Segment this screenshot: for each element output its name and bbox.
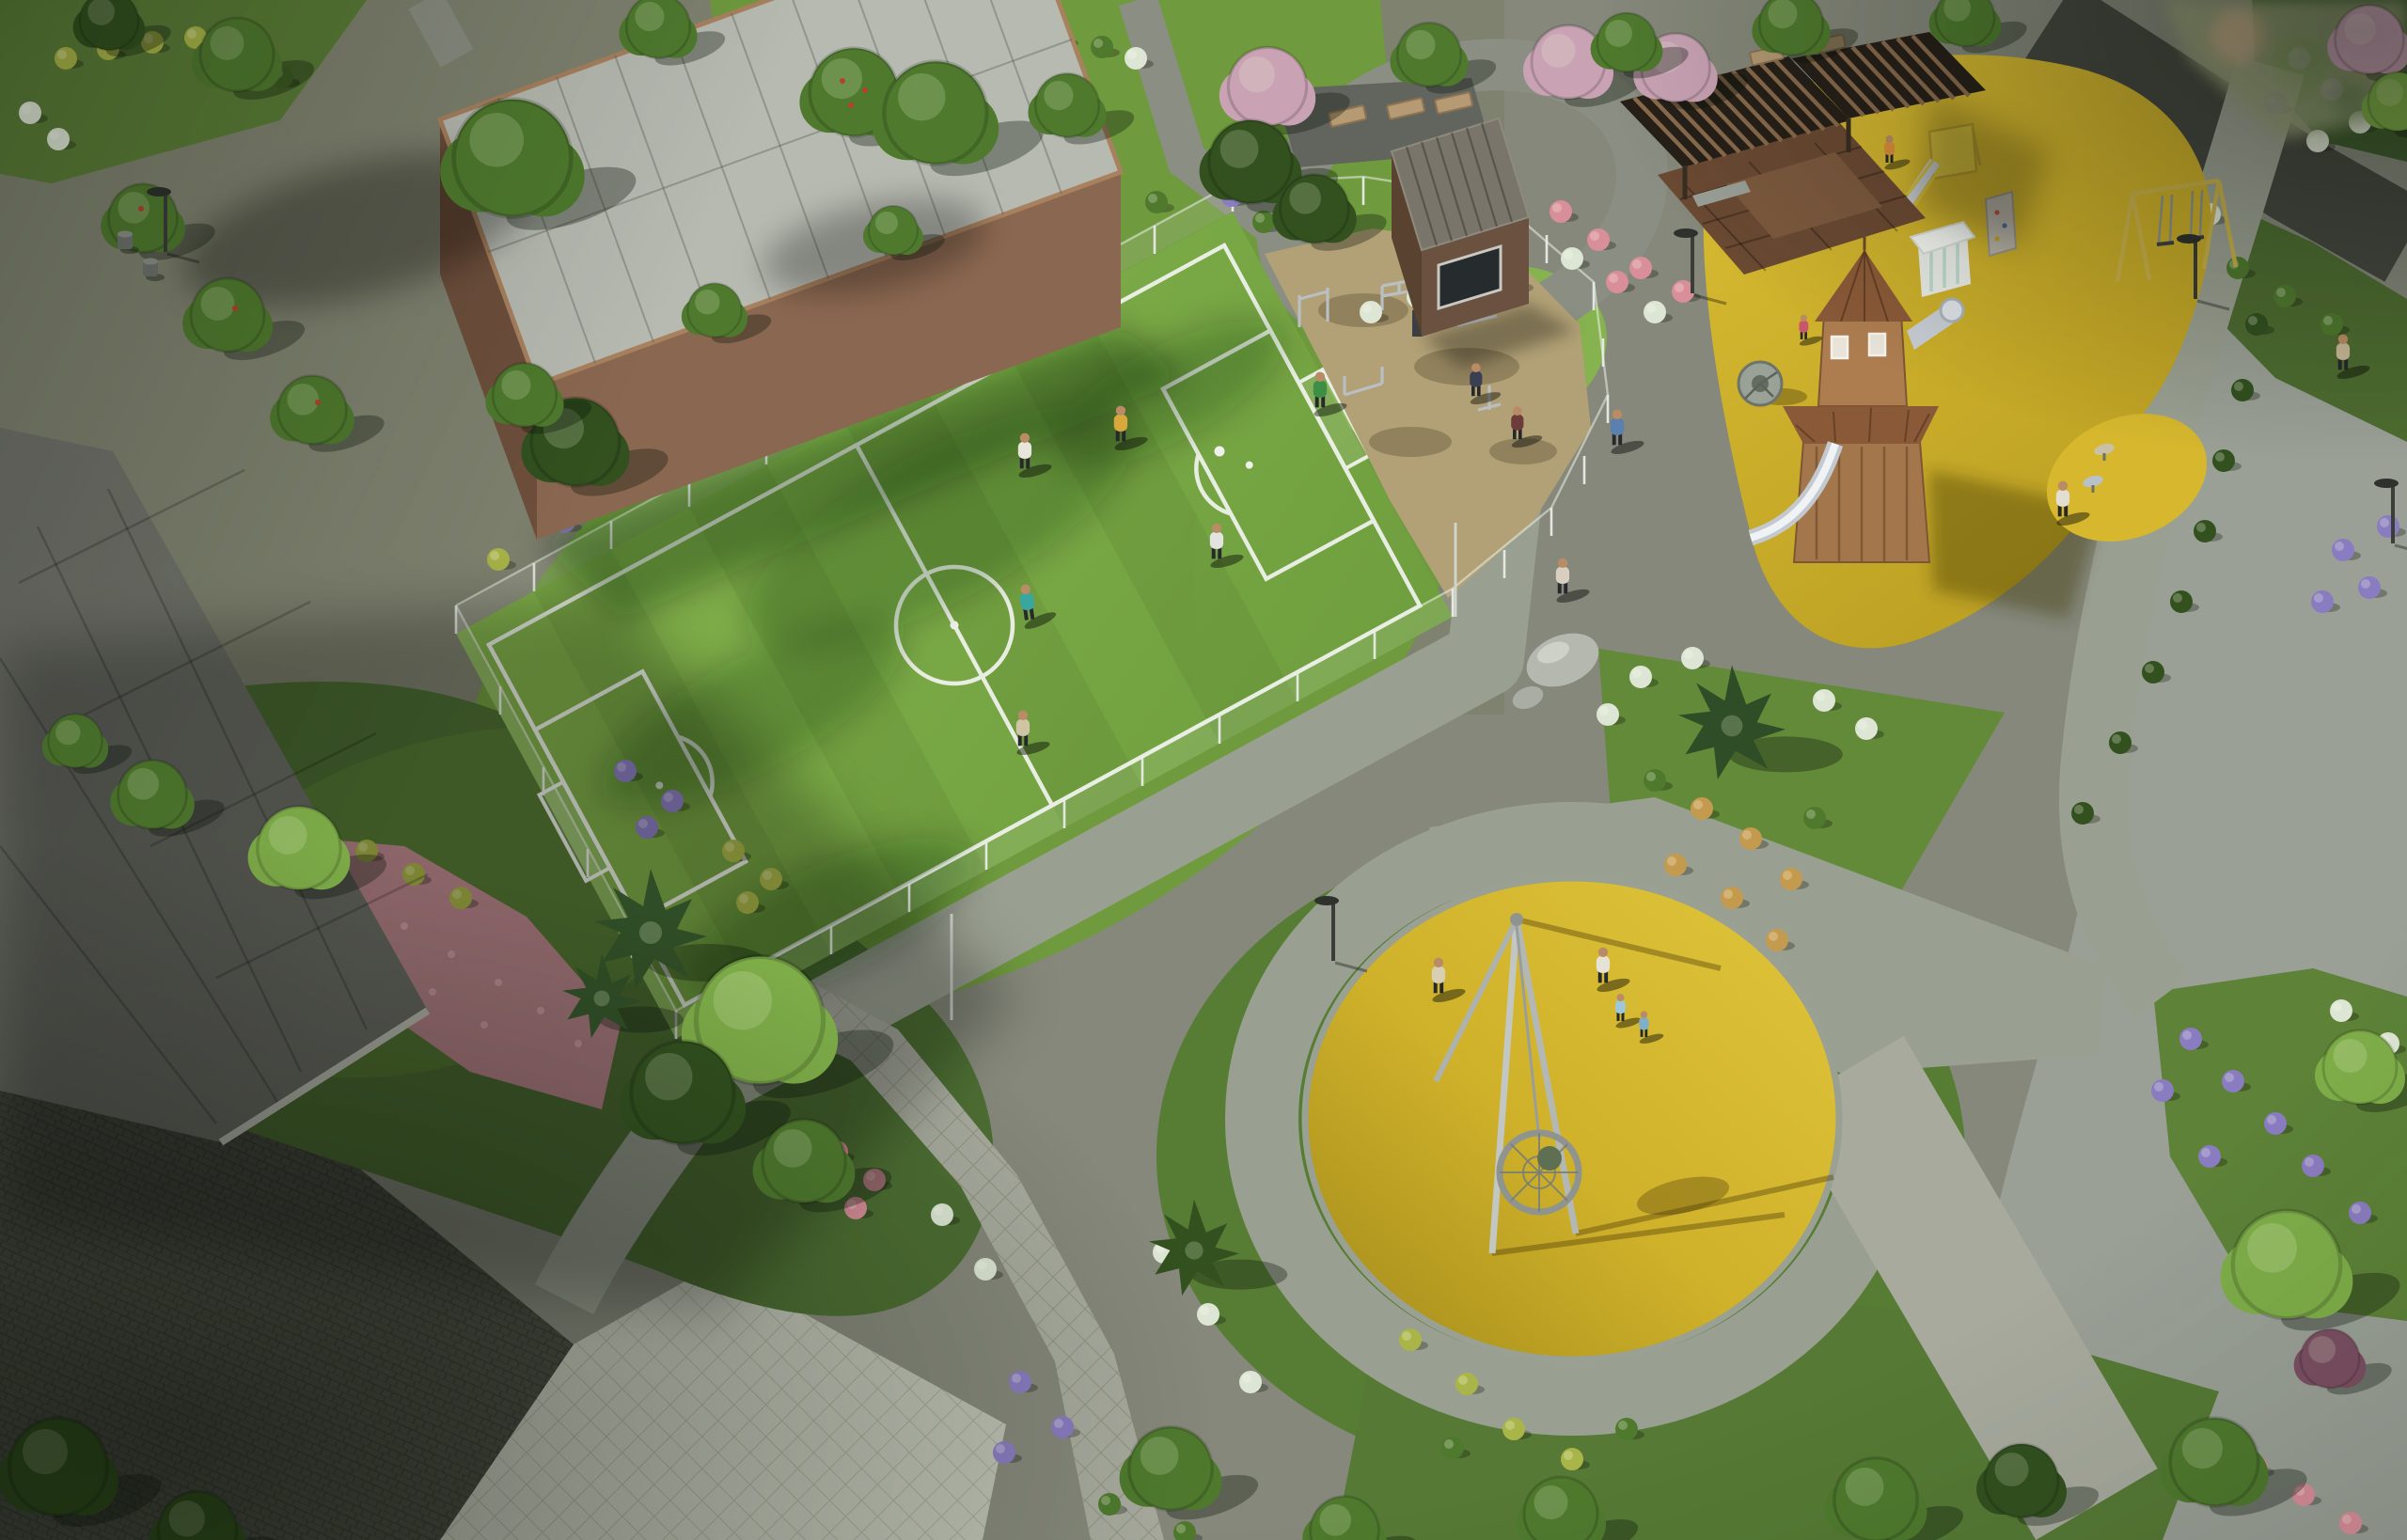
rubber-circle [1305,878,1839,1359]
soccer-ball [1215,447,1225,457]
rope-swing-area [1305,878,1839,1359]
basket-net [1500,1133,1579,1212]
courtyard-render [0,0,2407,1540]
scene-svg [0,0,2407,1540]
